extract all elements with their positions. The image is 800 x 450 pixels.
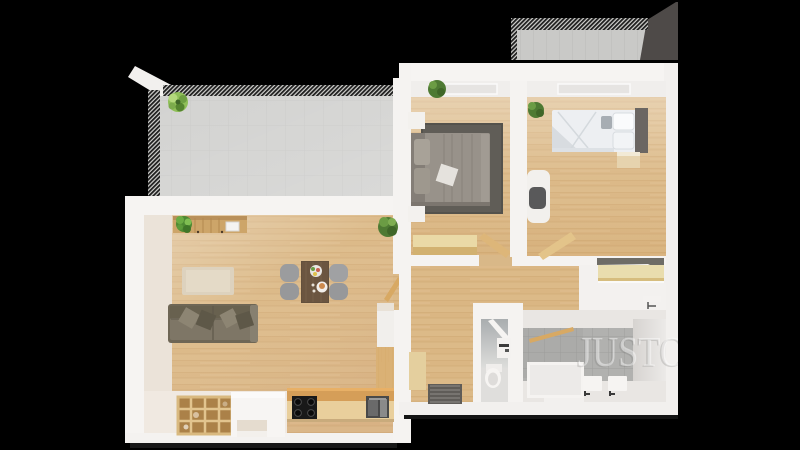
svg-text:JUSTO: JUSTO bbox=[578, 330, 686, 376]
